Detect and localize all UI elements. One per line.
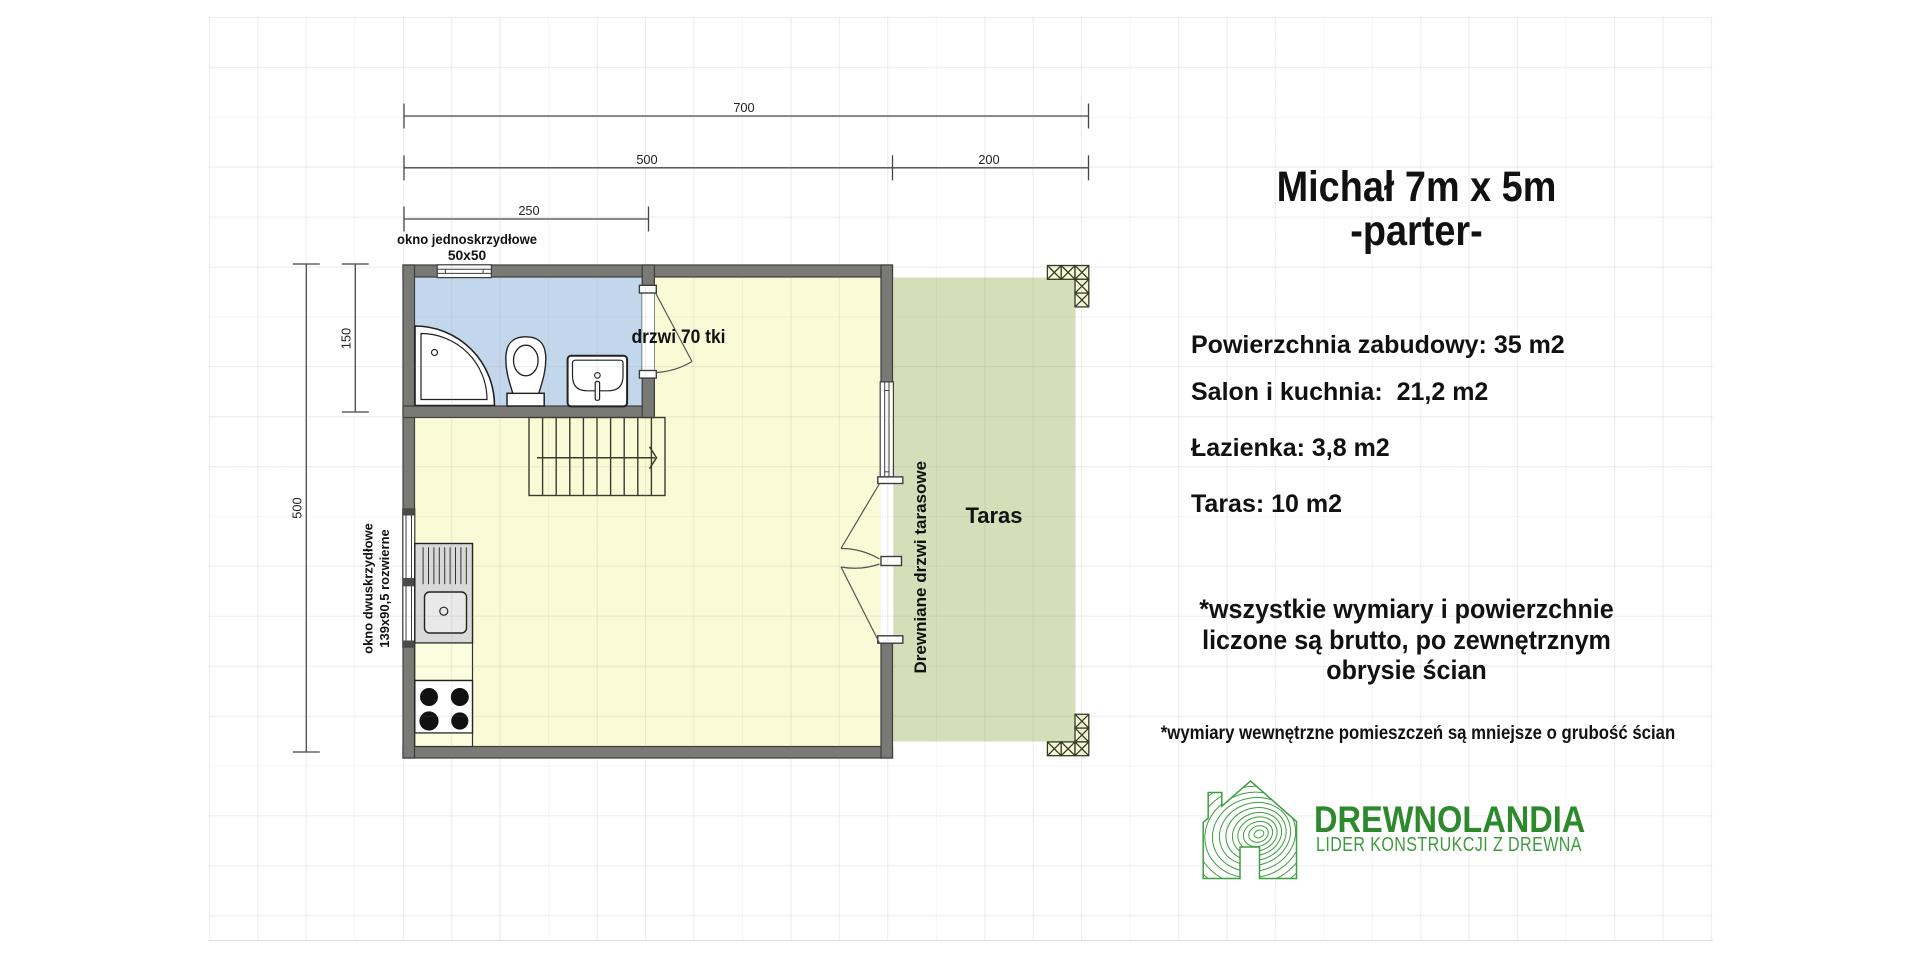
svg-text:200: 200 (978, 152, 999, 167)
svg-text:drzwi 70 tki: drzwi 70 tki (632, 326, 726, 348)
svg-text:okno jednoskrzydłowe: okno jednoskrzydłowe (397, 232, 537, 247)
svg-text:Drewniane drzwi tarasowe: Drewniane drzwi tarasowe (911, 461, 930, 674)
svg-text:Taras: Taras (965, 503, 1022, 528)
svg-text:500: 500 (290, 497, 305, 518)
svg-text:250: 250 (518, 203, 539, 218)
svg-text:500: 500 (636, 152, 657, 167)
svg-text:700: 700 (733, 100, 754, 115)
svg-text:50x50: 50x50 (448, 248, 487, 263)
svg-text:139x90,5 rozwierne: 139x90,5 rozwierne (377, 529, 392, 648)
svg-text:150: 150 (339, 328, 354, 349)
svg-text:okno dwuskrzydłowe: okno dwuskrzydłowe (361, 523, 376, 654)
